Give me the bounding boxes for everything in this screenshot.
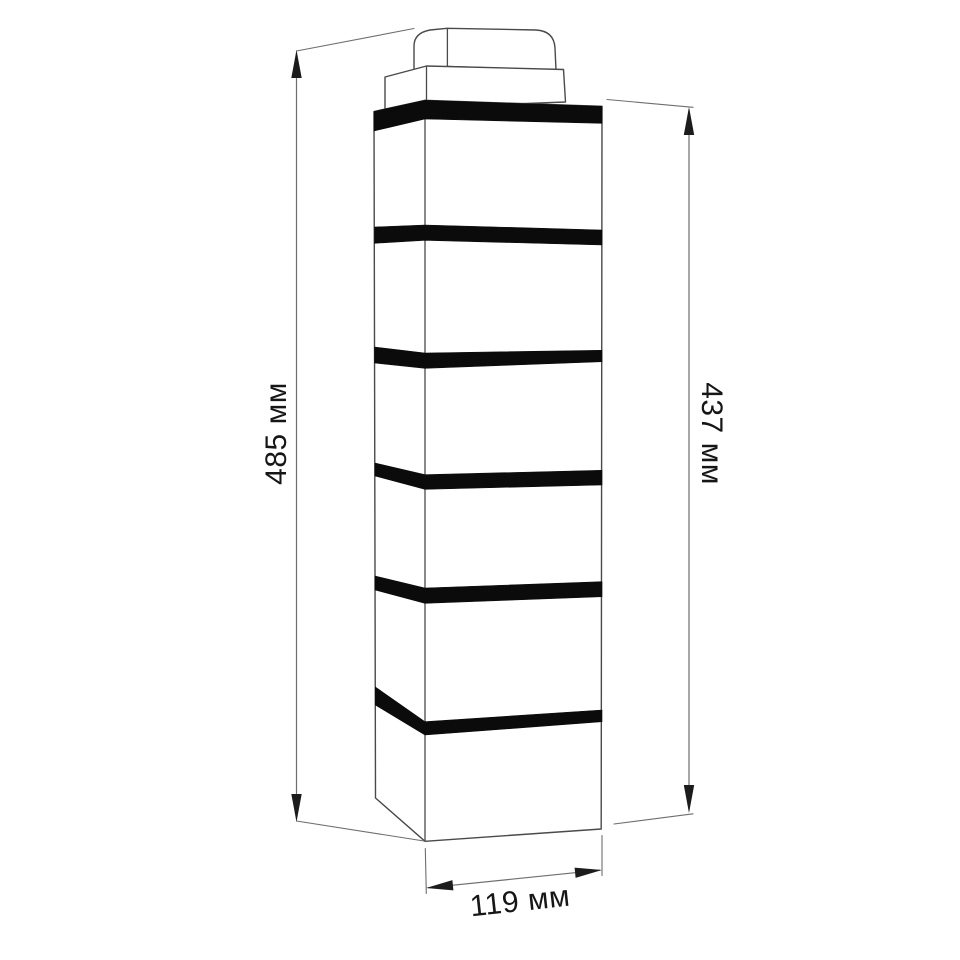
top-tab <box>414 28 556 72</box>
arrowhead-down-icon <box>684 785 694 813</box>
corner-panel-drawing <box>374 28 602 841</box>
arrowhead-right-icon <box>575 868 602 878</box>
arrowhead-down-icon <box>291 794 301 822</box>
extension-line-top-right <box>607 100 693 108</box>
extension-line-bottom-right <box>614 814 693 824</box>
dimension-label-overall-height: 485 мм <box>260 382 293 485</box>
dimension-panel-height: 437 мм <box>607 100 728 825</box>
dimension-label-width: 119 мм <box>468 880 571 924</box>
extension-line-width-left <box>425 849 426 894</box>
corner-panel-dimension-diagram: 485 мм 437 мм 119 мм <box>0 0 960 960</box>
dimension-label-panel-height: 437 мм <box>695 382 728 485</box>
arrowhead-up-icon <box>684 107 694 135</box>
extension-line-top-left <box>297 29 415 52</box>
arrowhead-up-icon <box>291 50 301 78</box>
arrowhead-left-icon <box>426 880 453 890</box>
dimension-width: 119 мм <box>425 836 602 924</box>
